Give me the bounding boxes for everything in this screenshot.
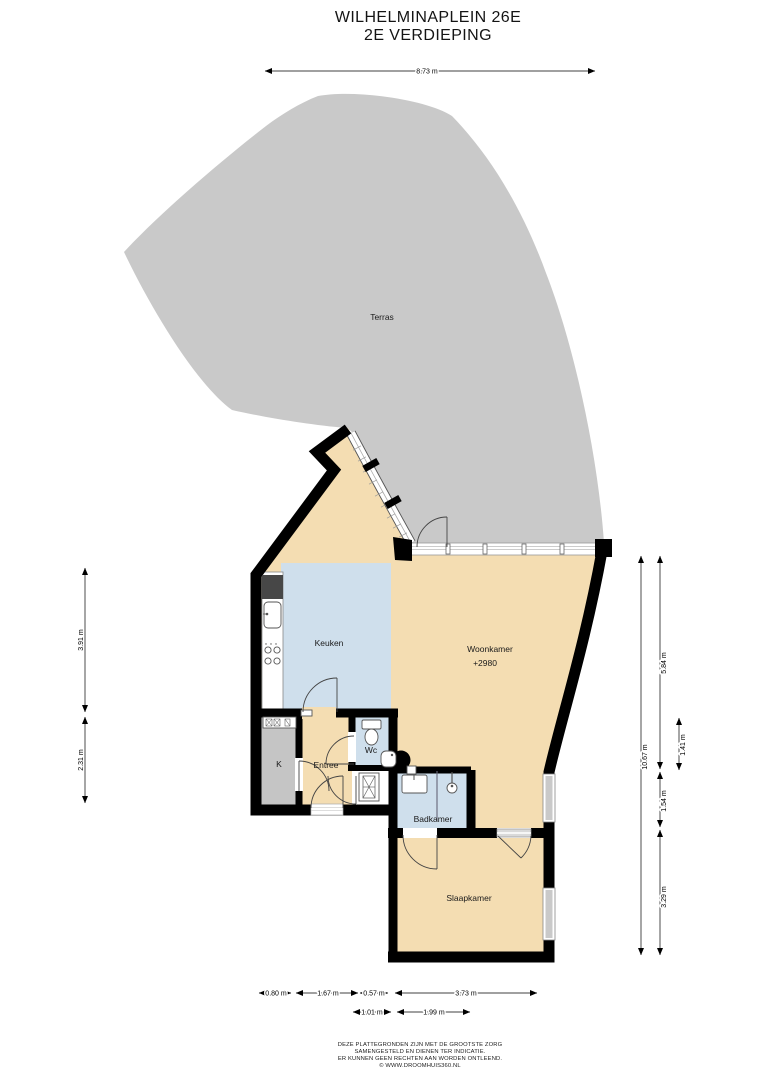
label-entree: Entree: [313, 760, 338, 770]
bathroom-sink-icon: [402, 775, 427, 793]
page-subtitle: 2E VERDIEPING: [364, 27, 492, 44]
badkamer-door-opening: [403, 828, 437, 838]
label-woonkamer-level: +2980: [473, 658, 497, 668]
dim-label: 2.31 m: [78, 749, 85, 771]
dim-label: 3.91 m: [78, 629, 85, 651]
window-top-band: [410, 543, 600, 555]
label-wc: Wc: [365, 745, 378, 755]
wc-sink-icon: [381, 751, 396, 767]
footer-line: ER KUNNEN GEEN RECHTEN AAN WORDEN ONTLEE…: [338, 1056, 503, 1062]
dim-label: 0.80 m: [265, 991, 287, 998]
floorplan-canvas: 8.73 m 3.91 m 2.31 m 10.67 m 5.84 m 1.54…: [0, 0, 763, 1080]
label-slaapkamer: Slaapkamer: [446, 893, 492, 903]
dim-label: 8.73 m: [416, 69, 438, 76]
label-woonkamer: Woonkamer: [467, 644, 513, 654]
label-badkamer: Badkamer: [414, 814, 453, 824]
dim-label: 1.01 m: [361, 1010, 383, 1017]
label-terras: Terras: [370, 312, 394, 322]
dim-label: 0.57 m: [363, 991, 385, 998]
dim-label: 1.41 m: [680, 734, 687, 756]
footer-line: SAMENGESTELD EN DIENEN TER INDICATIE.: [355, 1049, 486, 1055]
dim-label: 1.54 m: [661, 790, 668, 812]
boiler-icon: [359, 773, 379, 801]
window-slaapkamer: [543, 888, 555, 940]
fridge-icon: [262, 575, 283, 599]
sliding-door-slaapkamer: [497, 828, 531, 838]
window-woonkamer: [543, 774, 555, 822]
dim-label: 3.73 m: [455, 991, 477, 998]
footer-line: DEZE PLATTEGRONDEN ZIJN MET DE GROOTSTE …: [338, 1042, 503, 1048]
dim-label: 3.29 m: [661, 886, 668, 908]
dim-label: 10.67 m: [642, 744, 649, 769]
front-door-threshold: [311, 804, 343, 815]
label-keuken: Keuken: [315, 638, 344, 648]
label-kast: K: [276, 759, 282, 769]
wall-door-post: [393, 537, 412, 561]
floorplan-page: 8.73 m 3.91 m 2.31 m 10.67 m 5.84 m 1.54…: [0, 0, 763, 1080]
page-title: WILHELMINAPLEIN 26E: [335, 9, 521, 26]
meter-cabinet-icon: [263, 717, 296, 728]
kitchen-sink-icon: [263, 602, 281, 628]
dim-label: 1.99 m: [423, 1010, 445, 1017]
wall-corner-block: [595, 539, 612, 557]
wall-niche: [407, 766, 416, 774]
dim-label: 1.67 m: [317, 991, 339, 998]
dim-label: 5.84 m: [661, 652, 668, 674]
footer-line: © WWW.DROOMHUIS360.NL: [379, 1062, 461, 1069]
